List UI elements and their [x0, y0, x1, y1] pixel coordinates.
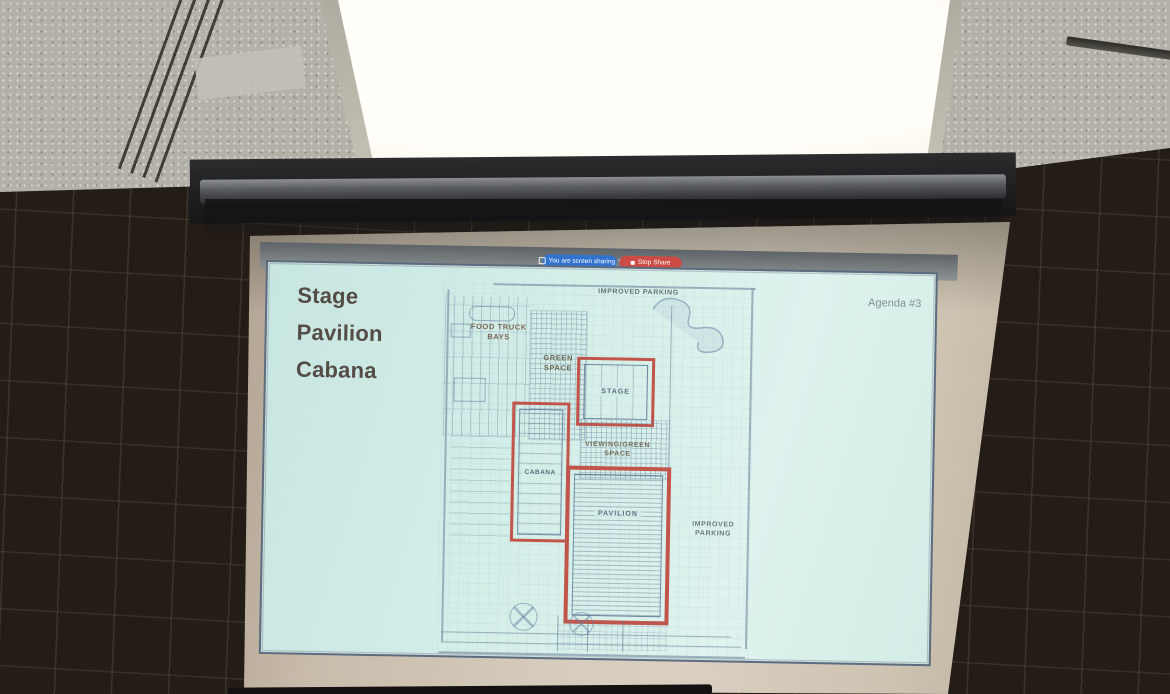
share-icon	[538, 257, 545, 264]
stage-label: STAGE	[598, 387, 633, 397]
cabana-label: CABANA	[521, 467, 558, 477]
presentation-slide: Stage Pavilion Cabana Agenda #3 IMPROVED…	[259, 260, 938, 666]
share-status-label: You are screen sharing	[548, 257, 615, 265]
stage-structure: STAGE	[583, 364, 648, 420]
site-structure	[453, 377, 485, 402]
cabana-highlight-box: CABANA	[510, 402, 571, 543]
ceiling-panel-patch	[194, 46, 306, 101]
parking-rows	[449, 435, 511, 536]
tree-symbol	[509, 603, 538, 632]
food-truck-structure	[469, 306, 515, 322]
ceiling-vent-icon	[1066, 36, 1170, 60]
plan-boundary-bottom	[439, 651, 745, 658]
viewing-green-space-label: VIEWING/GREEN SPACE	[562, 439, 672, 460]
landscape-path	[642, 291, 743, 363]
stop-icon	[631, 260, 635, 264]
improved-parking-right-label: IMPROVED PARKING	[673, 520, 753, 540]
stop-share-label: Stop Share	[638, 259, 671, 267]
meeting-room-photo: You are screen sharing ^ Stop Share Stag…	[0, 0, 1170, 694]
slide-title: Stage Pavilion Cabana	[296, 277, 384, 390]
pavilion-label: PAVILION	[595, 509, 641, 519]
site-plan: IMPROVED PARKING FOOD TRUCK BAYS GREEN S…	[437, 275, 756, 659]
pavilion-structure: PAVILION	[572, 474, 664, 618]
food-truck-bays-label: FOOD TRUCK BAYS	[457, 322, 541, 344]
pavilion-highlight-box: PAVILION	[563, 466, 671, 626]
cabana-structure: CABANA	[517, 409, 563, 536]
stage-highlight-box: STAGE	[576, 357, 655, 427]
agenda-number: Agenda #3	[868, 297, 921, 310]
plan-boundary-right	[745, 289, 753, 649]
